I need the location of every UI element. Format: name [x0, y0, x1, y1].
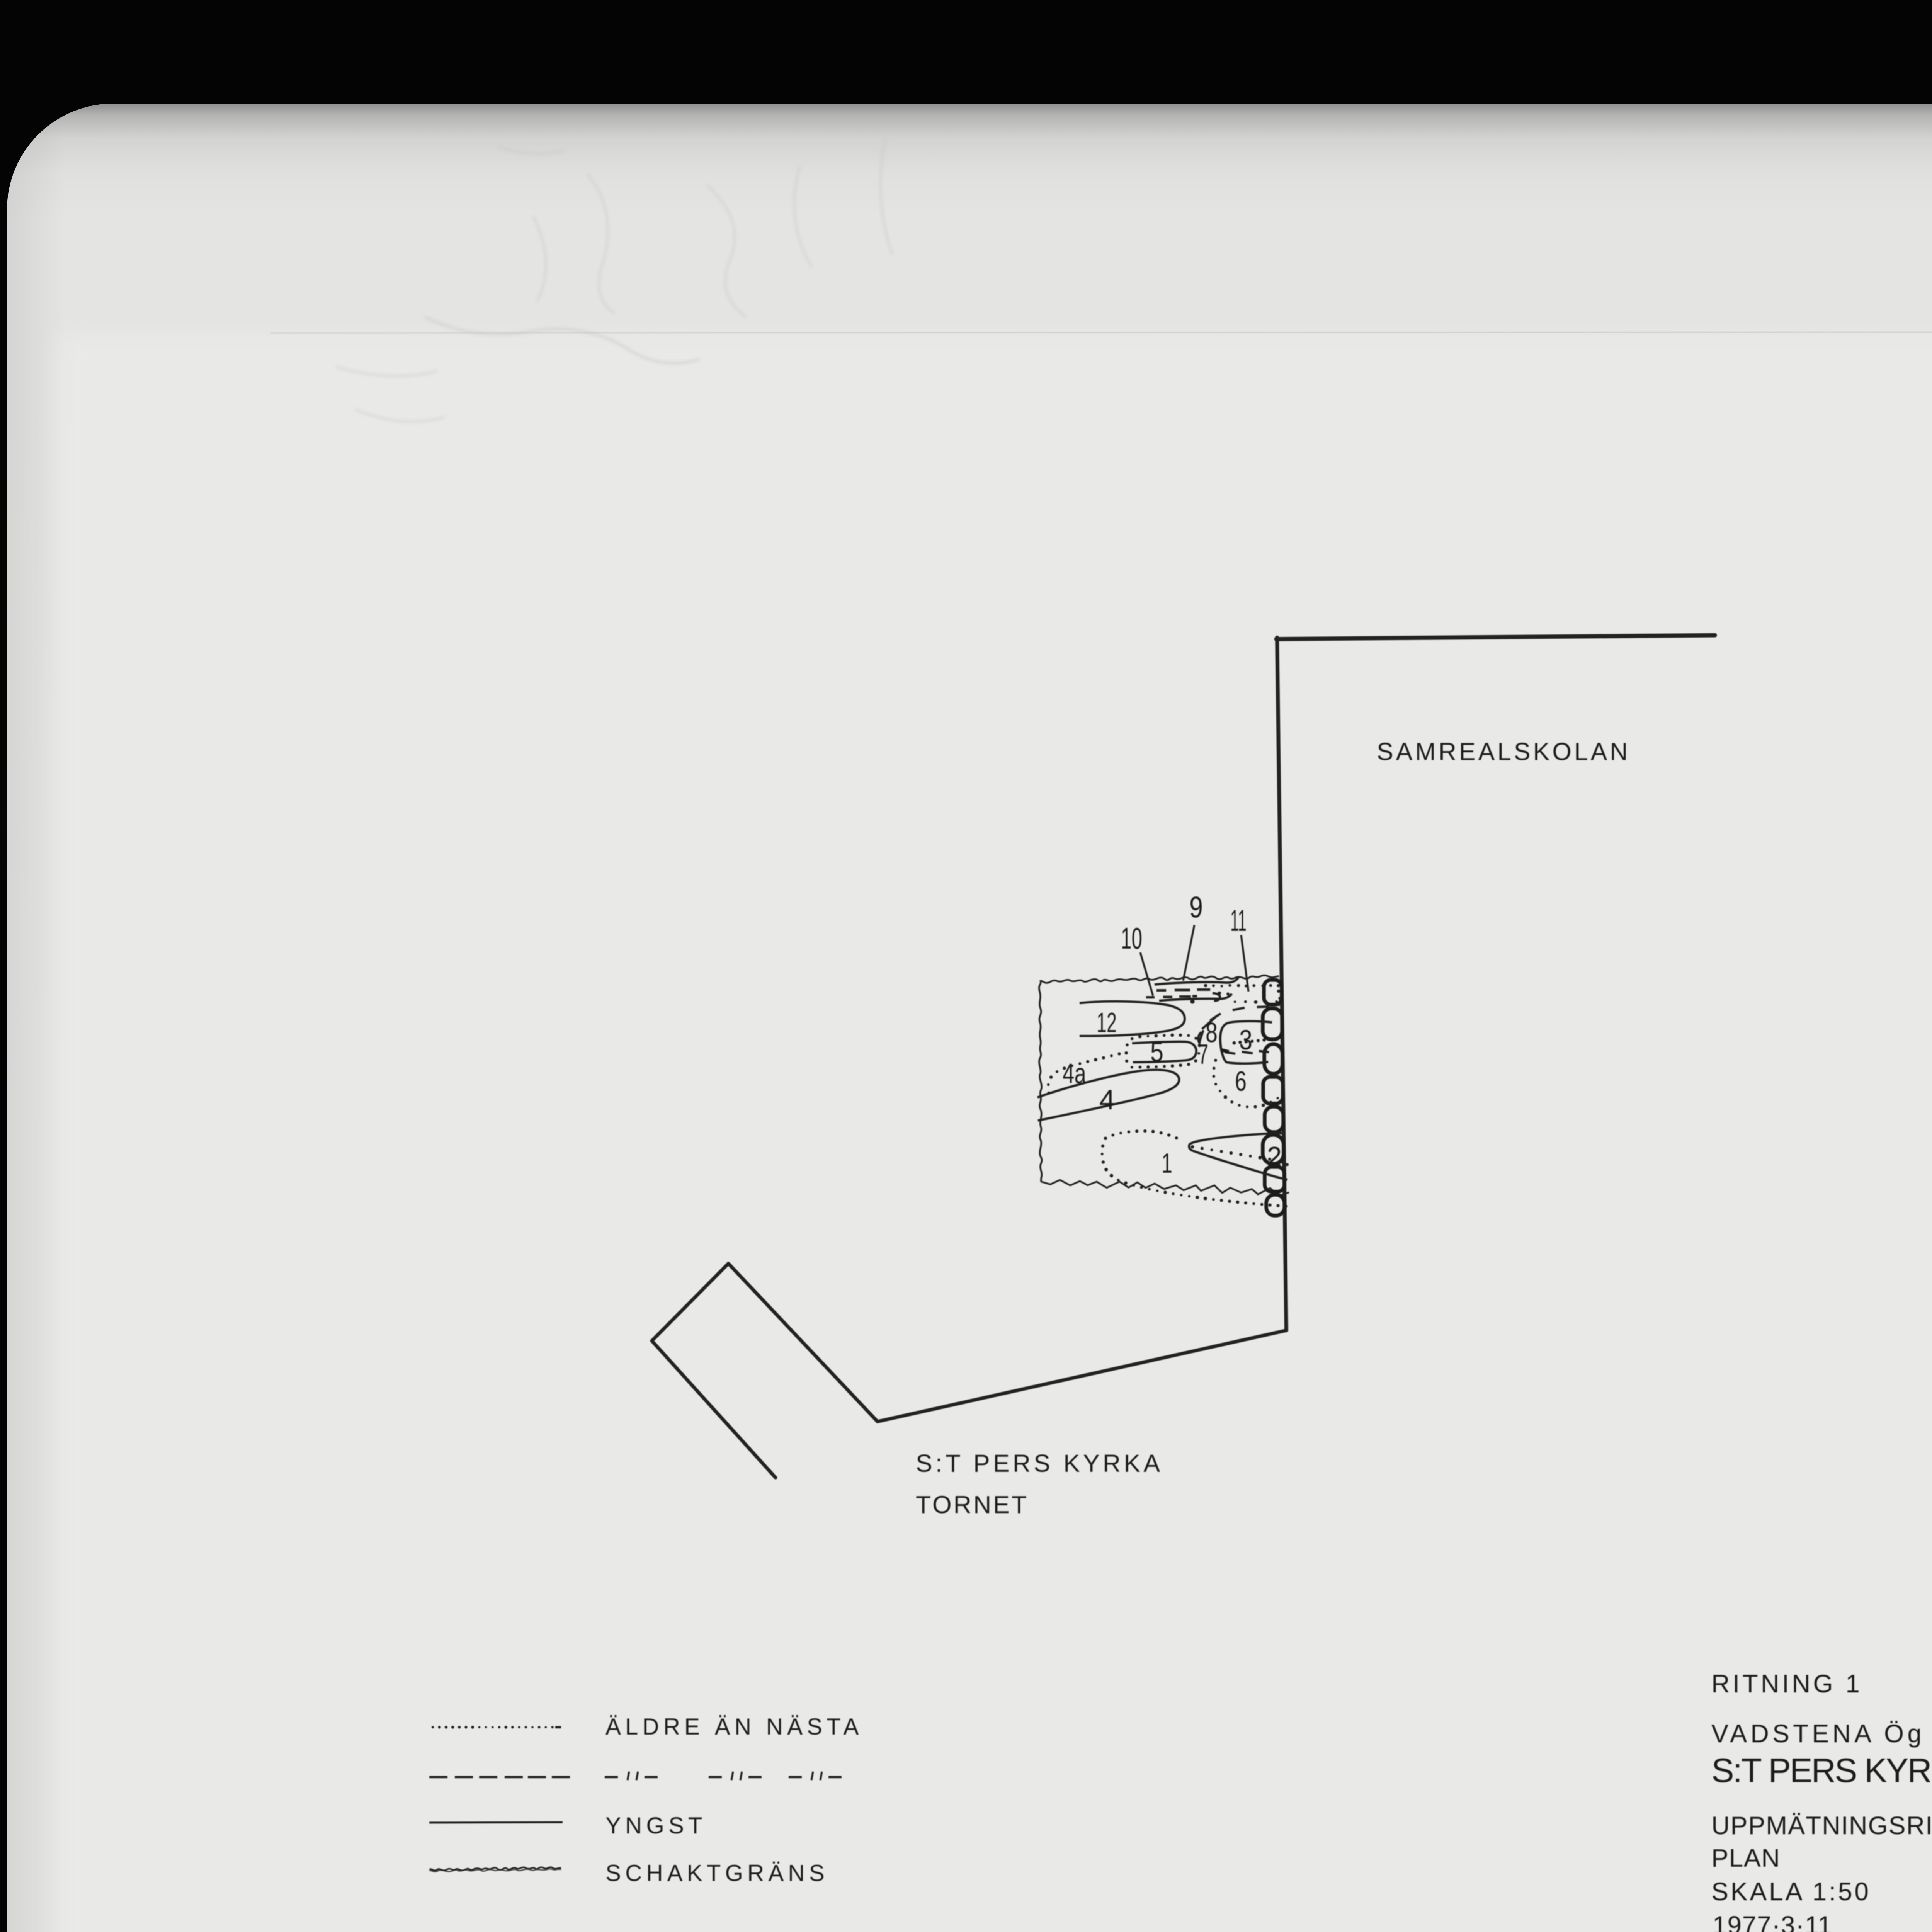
svg-text:TORNET: TORNET	[916, 1491, 1029, 1519]
svg-text:ÄLDRE ÄN NÄSTA: ÄLDRE ÄN NÄSTA	[605, 1714, 863, 1740]
svg-text:9: 9	[1189, 890, 1203, 924]
svg-text:3: 3	[1239, 1025, 1252, 1056]
svg-text:UPPMÄTNINGSRITNING: UPPMÄTNINGSRITNING	[1711, 1811, 1932, 1840]
svg-text:10: 10	[1121, 921, 1142, 955]
svg-text:SAMREALSKOLAN: SAMREALSKOLAN	[1377, 738, 1631, 765]
svg-text:6: 6	[1235, 1066, 1247, 1097]
svg-text:SCHAKTGRÄNS: SCHAKTGRÄNS	[605, 1860, 829, 1886]
svg-text:4: 4	[1099, 1085, 1115, 1116]
svg-text:YNGST: YNGST	[605, 1813, 707, 1838]
svg-text:SKALA 1:50: SKALA 1:50	[1711, 1877, 1872, 1906]
svg-text:S:T PERS KYRKA: S:T PERS KYRKA	[916, 1449, 1162, 1477]
svg-text:RITNING 1: RITNING 1	[1711, 1669, 1866, 1698]
svg-text:12: 12	[1097, 1007, 1117, 1038]
svg-text:VADSTENA Ög: VADSTENA Ög	[1711, 1719, 1928, 1748]
svg-text:1977·3·11: 1977·3·11	[1713, 1911, 1834, 1932]
svg-text:2: 2	[1267, 1141, 1282, 1172]
svg-text:8: 8	[1206, 1017, 1218, 1048]
svg-text:5: 5	[1150, 1037, 1163, 1068]
svg-text:PLAN: PLAN	[1711, 1844, 1783, 1872]
svg-text:4a: 4a	[1063, 1058, 1087, 1089]
svg-text:S:T PERS KYRKA: S:T PERS KYRKA	[1711, 1751, 1932, 1789]
svg-text:11: 11	[1230, 903, 1247, 937]
svg-text:1: 1	[1162, 1148, 1172, 1179]
